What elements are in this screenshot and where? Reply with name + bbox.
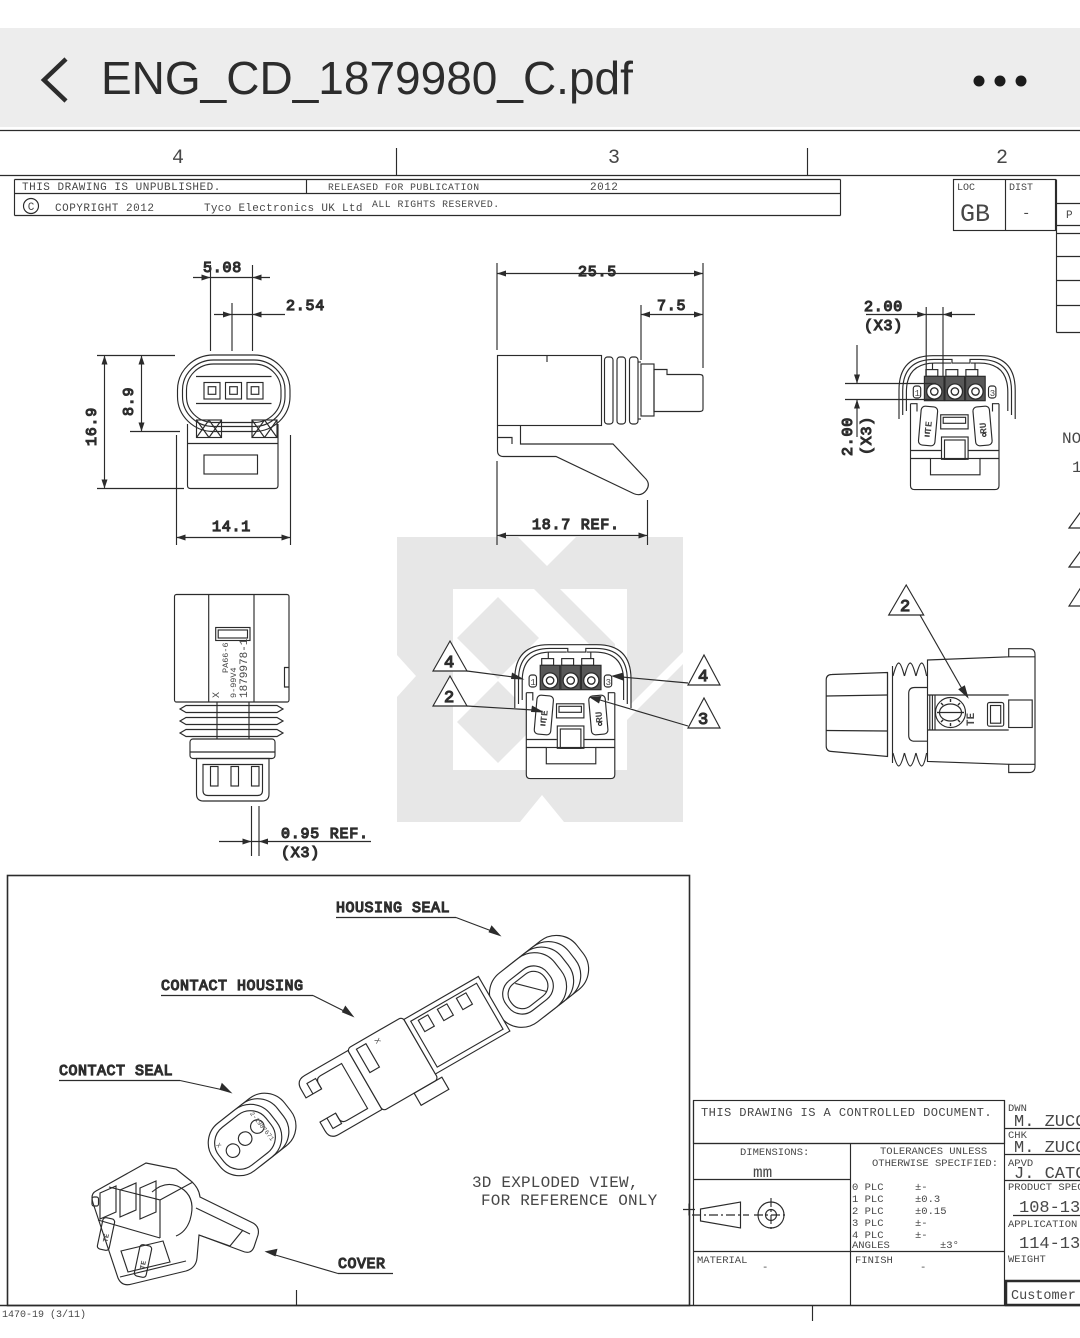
svg-text:2.00: 2.00 <box>840 417 857 456</box>
svg-text:X: X <box>212 692 223 698</box>
svg-text:3: 3 <box>608 147 620 170</box>
svg-text:Tyco Electronics UK Ltd: Tyco Electronics UK Ltd <box>204 203 363 215</box>
svg-text:0.95 REF.: 0.95 REF. <box>281 826 369 843</box>
svg-text:4: 4 <box>444 654 454 673</box>
svg-text:COPYRIGHT 2012: COPYRIGHT 2012 <box>55 203 154 215</box>
svg-text:THIS DRAWING IS UNPUBLISHED.: THIS DRAWING IS UNPUBLISHED. <box>22 182 221 194</box>
svg-text:OTHERWISE SPECIFIED:: OTHERWISE SPECIFIED: <box>872 1158 998 1170</box>
svg-text:108-1329: 108-1329 <box>1019 1199 1080 1218</box>
svg-text:NO: NO <box>1062 430 1080 448</box>
svg-text:1879978-1: 1879978-1 <box>239 638 251 698</box>
svg-text:GB: GB <box>960 200 990 229</box>
svg-text:FINISH: FINISH <box>855 1255 893 1267</box>
svg-text:114-1329: 114-1329 <box>1019 1235 1080 1254</box>
svg-text:M. ZUCCHI: M. ZUCCHI <box>1014 1139 1080 1158</box>
svg-text:18.7 REF.: 18.7 REF. <box>532 517 620 534</box>
svg-text:(X3): (X3) <box>859 416 876 455</box>
svg-text:LOC: LOC <box>957 183 975 194</box>
svg-text:±-: ±- <box>915 1230 928 1242</box>
svg-text:1470-19 (3/11): 1470-19 (3/11) <box>2 1309 86 1321</box>
svg-text:(X3): (X3) <box>281 845 320 862</box>
svg-text:DIST: DIST <box>1009 183 1033 194</box>
svg-text:(X3): (X3) <box>864 318 903 335</box>
svg-text:2: 2 <box>996 147 1008 170</box>
svg-text:ALL RIGHTS RESERVED.: ALL RIGHTS RESERVED. <box>372 199 500 210</box>
svg-text:mm: mm <box>753 1164 772 1182</box>
svg-text:CONTACT SEAL: CONTACT SEAL <box>59 1063 173 1080</box>
svg-text:14.1: 14.1 <box>212 519 251 536</box>
svg-text:TE: TE <box>102 1233 112 1243</box>
svg-text:±0.3: ±0.3 <box>915 1194 940 1206</box>
svg-text:±3°: ±3° <box>940 1240 959 1252</box>
svg-text:DIMENSIONS:: DIMENSIONS: <box>740 1147 809 1159</box>
svg-text:TE: TE <box>923 420 935 433</box>
svg-text:TE: TE <box>966 712 978 726</box>
svg-text:RELEASED FOR PUBLICATION: RELEASED FOR PUBLICATION <box>328 182 480 193</box>
svg-text:1: 1 <box>915 389 920 399</box>
svg-text:4: 4 <box>698 668 708 687</box>
svg-text:4: 4 <box>172 147 184 170</box>
svg-text:2012: 2012 <box>590 182 618 194</box>
svg-text:8.9: 8.9 <box>121 387 138 416</box>
svg-text:±-: ±- <box>915 1218 928 1230</box>
svg-text:ANGLES: ANGLES <box>852 1240 890 1252</box>
svg-text:THIS DRAWING IS A CONTROLLED D: THIS DRAWING IS A CONTROLLED DOCUMENT. <box>701 1106 992 1120</box>
svg-text:-: - <box>762 1262 768 1274</box>
svg-text:TOLERANCES UNLESS: TOLERANCES UNLESS <box>880 1146 987 1158</box>
svg-text:0 PLC: 0 PLC <box>852 1182 884 1194</box>
svg-text:1 PLC: 1 PLC <box>852 1194 884 1206</box>
svg-text:FOR REFERENCE ONLY: FOR REFERENCE ONLY <box>481 1192 658 1210</box>
svg-text:1: 1 <box>1072 459 1080 477</box>
svg-text:±-: ±- <box>915 1182 928 1194</box>
svg-text:25.5: 25.5 <box>578 264 617 281</box>
svg-text:APPLICATION: APPLICATION <box>1008 1219 1077 1231</box>
svg-text:COVER: COVER <box>338 1256 386 1273</box>
svg-text:2.54: 2.54 <box>286 298 325 315</box>
svg-text:C: C <box>28 202 35 214</box>
svg-text:PRODUCT SPEC: PRODUCT SPEC <box>1008 1182 1080 1194</box>
svg-text:RU: RU <box>978 422 990 435</box>
svg-text:2: 2 <box>900 598 910 617</box>
svg-text:MATERIAL: MATERIAL <box>697 1255 747 1267</box>
svg-text:-: - <box>1022 206 1030 222</box>
svg-text:WEIGHT: WEIGHT <box>1008 1254 1046 1266</box>
svg-text:2 PLC: 2 PLC <box>852 1206 884 1218</box>
svg-text:5.08: 5.08 <box>203 260 242 277</box>
svg-text:9-99V4: 9-99V4 <box>229 667 239 698</box>
svg-text:2: 2 <box>444 689 454 708</box>
svg-text:±0.15: ±0.15 <box>915 1206 947 1218</box>
svg-text:-: - <box>920 1262 926 1274</box>
svg-text:7.5: 7.5 <box>657 298 686 315</box>
svg-text:P: P <box>1066 210 1073 222</box>
svg-text:3D EXPLODED VIEW,: 3D EXPLODED VIEW, <box>472 1174 639 1192</box>
svg-text:16.9: 16.9 <box>84 407 101 446</box>
svg-text:3: 3 <box>698 711 708 730</box>
svg-text:3 PLC: 3 PLC <box>852 1218 884 1230</box>
svg-text:Customer: Customer <box>1011 1289 1076 1304</box>
svg-text:3: 3 <box>990 389 995 399</box>
svg-text:HOUSING SEAL: HOUSING SEAL <box>336 900 450 917</box>
svg-text:2.00: 2.00 <box>864 299 903 316</box>
svg-text:CONTACT HOUSING: CONTACT HOUSING <box>161 978 304 995</box>
